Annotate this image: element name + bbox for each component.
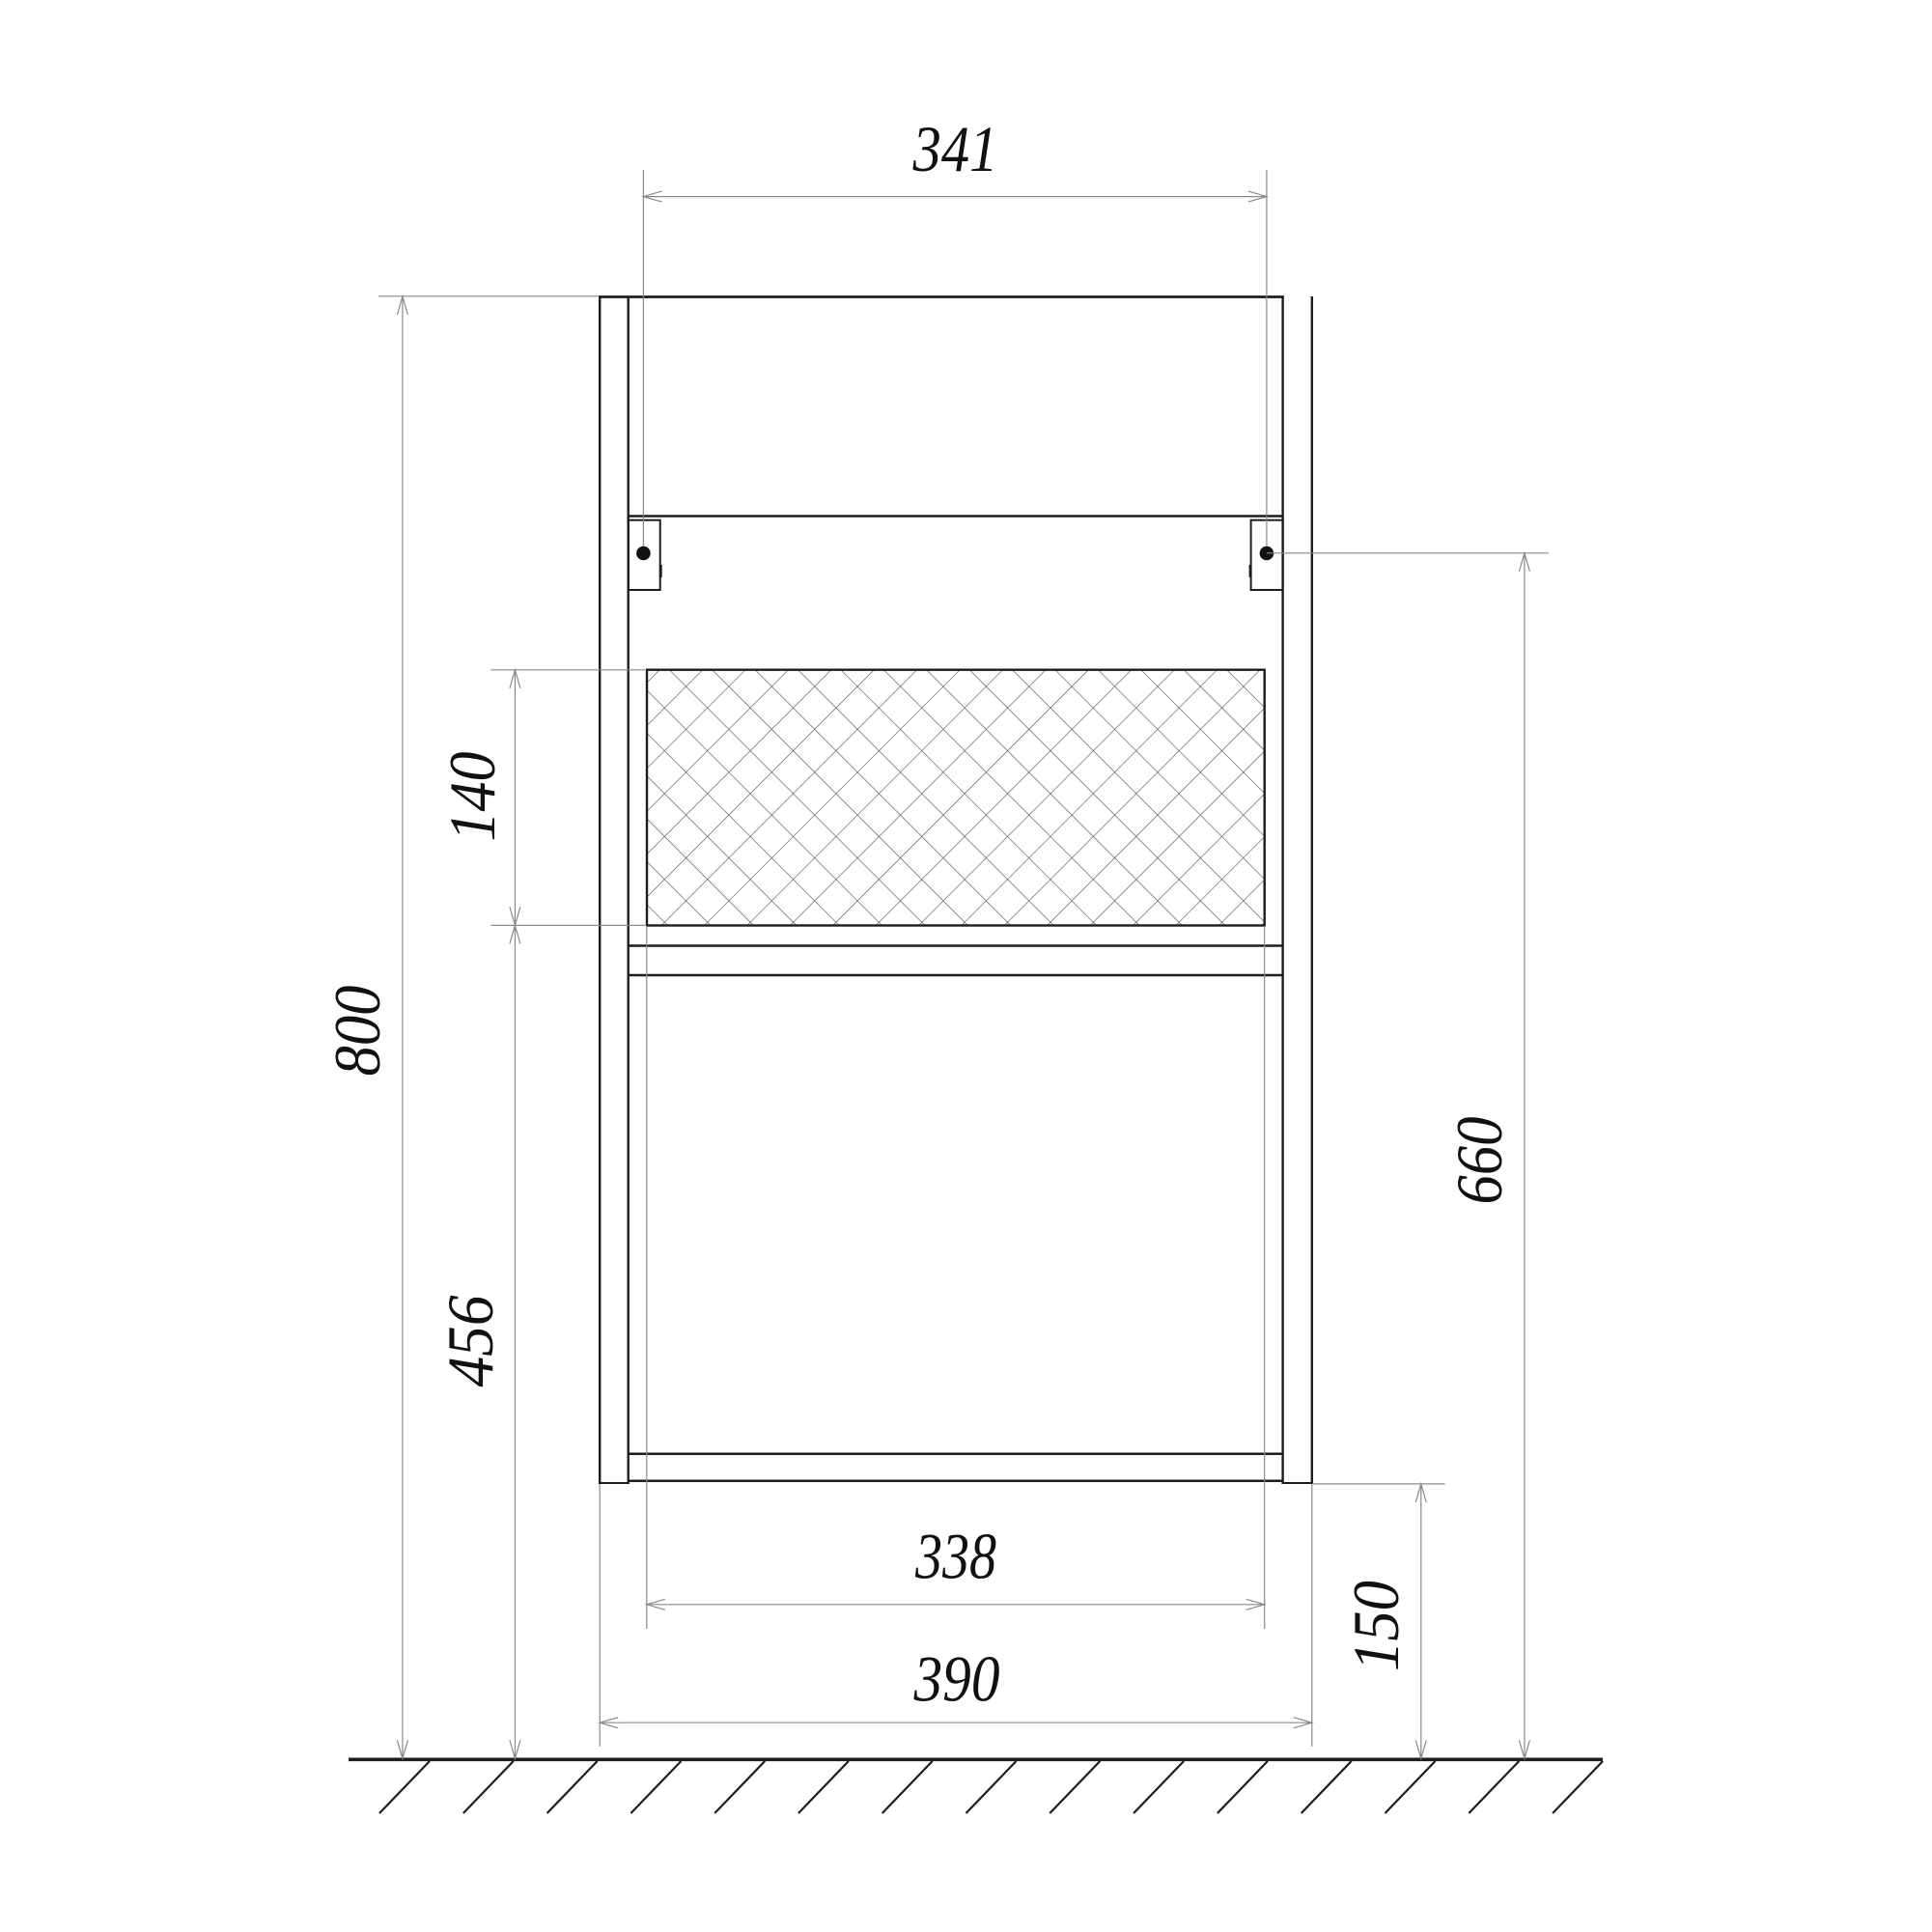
- svg-text:660: 660: [1442, 1117, 1516, 1205]
- svg-text:456: 456: [434, 1296, 507, 1387]
- svg-text:390: 390: [913, 1642, 1000, 1716]
- svg-text:140: 140: [435, 752, 509, 842]
- svg-text:800: 800: [321, 986, 394, 1077]
- svg-text:338: 338: [914, 1519, 996, 1592]
- svg-text:341: 341: [912, 112, 998, 185]
- svg-text:150: 150: [1339, 1581, 1413, 1671]
